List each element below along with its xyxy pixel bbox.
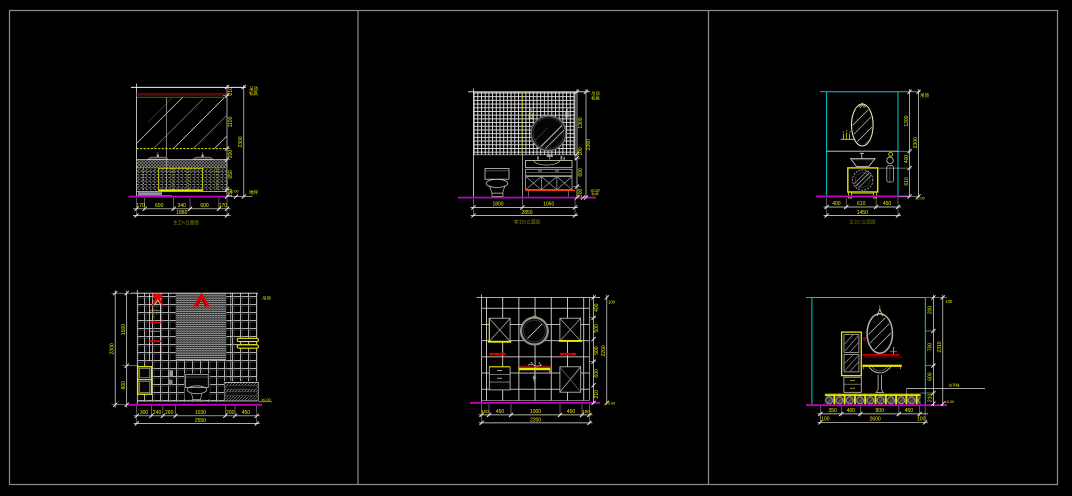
svg-text:400: 400 xyxy=(904,155,910,164)
svg-text:水平线: 水平线 xyxy=(949,383,960,388)
svg-text:±0.00: ±0.00 xyxy=(606,402,615,406)
svg-text:450: 450 xyxy=(242,410,251,416)
svg-text:2300: 2300 xyxy=(586,139,592,150)
svg-text:600: 600 xyxy=(578,168,584,177)
svg-text:2200: 2200 xyxy=(601,345,607,356)
svg-text:1300: 1300 xyxy=(904,115,910,126)
svg-text:800: 800 xyxy=(876,408,885,414)
svg-text:1000: 1000 xyxy=(530,409,541,415)
svg-text:2850: 2850 xyxy=(521,210,532,216)
svg-text:450: 450 xyxy=(496,409,505,415)
svg-text:1450: 1450 xyxy=(857,210,868,216)
svg-text:200: 200 xyxy=(928,306,934,315)
svg-text:主卫A立面图: 主卫A立面图 xyxy=(173,219,199,226)
svg-text:800: 800 xyxy=(121,381,127,390)
svg-text:700: 700 xyxy=(928,343,934,352)
svg-text:标高: 标高 xyxy=(591,94,599,101)
svg-text:500: 500 xyxy=(594,324,600,333)
svg-text:450: 450 xyxy=(567,409,576,415)
svg-text:350: 350 xyxy=(829,408,838,414)
svg-text:600: 600 xyxy=(594,369,600,378)
svg-text:100: 100 xyxy=(945,299,953,304)
svg-text:200: 200 xyxy=(228,150,234,159)
svg-text:±0.00: ±0.00 xyxy=(945,400,954,404)
svg-text:200: 200 xyxy=(226,410,235,416)
svg-text:2600: 2600 xyxy=(870,417,881,423)
svg-text:600: 600 xyxy=(928,372,934,381)
svg-text:210: 210 xyxy=(928,394,934,403)
svg-text:100: 100 xyxy=(578,147,584,156)
svg-text:400: 400 xyxy=(832,201,841,207)
svg-text:100: 100 xyxy=(821,417,830,423)
svg-text:1800: 1800 xyxy=(492,202,503,208)
svg-text:300: 300 xyxy=(140,410,149,416)
svg-text:标高: 标高 xyxy=(249,90,258,97)
svg-text:450: 450 xyxy=(883,201,892,207)
svg-text:2300: 2300 xyxy=(238,136,244,147)
svg-text:1100: 1100 xyxy=(228,116,234,127)
svg-text:240: 240 xyxy=(153,410,162,416)
svg-text:1050: 1050 xyxy=(543,202,554,208)
svg-text:340: 340 xyxy=(178,203,187,209)
svg-text:500: 500 xyxy=(594,346,600,355)
svg-text:2310: 2310 xyxy=(937,341,943,352)
svg-text:标高: 标高 xyxy=(591,191,599,196)
svg-text:170: 170 xyxy=(136,203,145,209)
svg-text:100: 100 xyxy=(608,300,616,305)
svg-text:150: 150 xyxy=(481,409,489,414)
svg-text:±0.00: ±0.00 xyxy=(915,197,924,201)
svg-text:地坪: 地坪 xyxy=(249,189,258,196)
svg-text:150: 150 xyxy=(582,409,590,414)
svg-text:100: 100 xyxy=(917,417,926,423)
svg-text:±0.00: ±0.00 xyxy=(230,189,239,193)
svg-text:170: 170 xyxy=(219,203,228,209)
svg-text:400: 400 xyxy=(594,303,600,312)
svg-text:1030: 1030 xyxy=(195,410,206,416)
svg-text:客卫B立面图: 客卫B立面图 xyxy=(514,219,540,226)
svg-text:1880: 1880 xyxy=(176,210,187,216)
svg-text:1500: 1500 xyxy=(121,324,127,335)
svg-text:2300: 2300 xyxy=(110,343,116,354)
svg-text:450: 450 xyxy=(905,408,914,414)
svg-text:2200: 2200 xyxy=(530,417,541,423)
svg-text:400: 400 xyxy=(847,408,856,414)
svg-text:210: 210 xyxy=(228,87,234,96)
svg-text:610: 610 xyxy=(904,177,910,186)
svg-text:260: 260 xyxy=(165,410,174,416)
svg-text:1300: 1300 xyxy=(578,117,584,128)
svg-text:主卫C立面图: 主卫C立面图 xyxy=(849,219,876,226)
svg-text:300: 300 xyxy=(578,189,584,198)
svg-text:600: 600 xyxy=(200,203,209,209)
svg-text:±0.00: ±0.00 xyxy=(261,398,270,402)
svg-text:600: 600 xyxy=(155,203,164,209)
svg-text:2550: 2550 xyxy=(195,418,206,424)
svg-text:210: 210 xyxy=(594,390,600,399)
svg-text:2300: 2300 xyxy=(913,137,919,148)
svg-text:610: 610 xyxy=(857,201,866,207)
svg-text:650: 650 xyxy=(228,170,234,179)
